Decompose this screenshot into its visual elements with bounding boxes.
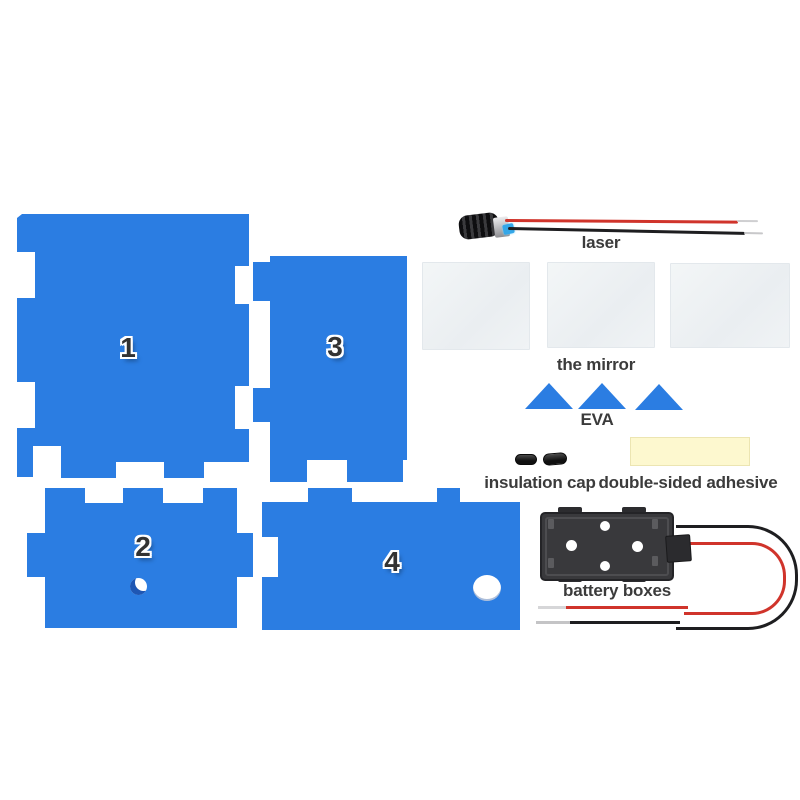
panel-3-number: 3: [327, 333, 343, 361]
insulation-cap-2: [543, 452, 568, 466]
laser-red-wire: [505, 219, 738, 224]
insulation-cap-1: [515, 454, 537, 465]
battery-box-connector: [665, 534, 692, 563]
eva-triangle-3: [635, 384, 683, 410]
battery-contact: [652, 556, 658, 566]
mirror-3: [670, 263, 790, 348]
acrylic-panel-4: 4: [262, 488, 520, 630]
battery-box-hole: [600, 521, 610, 531]
eva-triangle-2: [578, 383, 626, 409]
acrylic-panel-3: 3: [253, 256, 407, 482]
battery-red-wire-tip: [538, 606, 566, 609]
label-eva: EVA: [580, 411, 613, 429]
panel-2-hole: [130, 578, 147, 595]
mirror-2: [547, 262, 655, 348]
eva-triangle-1: [525, 383, 573, 409]
battery-red-wire: [566, 606, 688, 609]
battery-contact: [548, 558, 554, 568]
laser-kit-parts-image: 1 3 2 4 laser the mirror EVA insulation …: [0, 0, 800, 800]
panel-4-hole: [473, 575, 501, 601]
battery-black-wire: [570, 621, 680, 624]
battery-box-hole: [566, 540, 577, 551]
laser-black-wire-tip: [744, 232, 763, 234]
laser-black-wire: [508, 227, 745, 235]
battery-box-hole: [600, 561, 610, 571]
battery-box-hole: [632, 541, 643, 552]
battery-red-wire-loop: [684, 542, 786, 615]
panel-1-number: 1: [120, 334, 136, 362]
label-battery-boxes: battery boxes: [563, 582, 671, 600]
label-adhesive: double-sided adhesive: [598, 474, 777, 492]
panel-4-number: 4: [384, 548, 400, 576]
mirror-1: [422, 262, 530, 350]
label-mirror: the mirror: [557, 356, 635, 374]
label-insulation-cap: insulation cap: [484, 474, 596, 492]
acrylic-panel-1: 1: [16, 214, 249, 478]
battery-contact: [548, 519, 554, 529]
battery-black-wire-tip: [536, 621, 570, 624]
label-laser: laser: [582, 234, 621, 252]
double-sided-adhesive-strip: [630, 437, 750, 466]
battery-contact: [652, 519, 658, 529]
acrylic-panel-2: 2: [27, 488, 253, 628]
panel-2-number: 2: [135, 533, 151, 561]
laser-red-wire-tip: [737, 220, 758, 222]
